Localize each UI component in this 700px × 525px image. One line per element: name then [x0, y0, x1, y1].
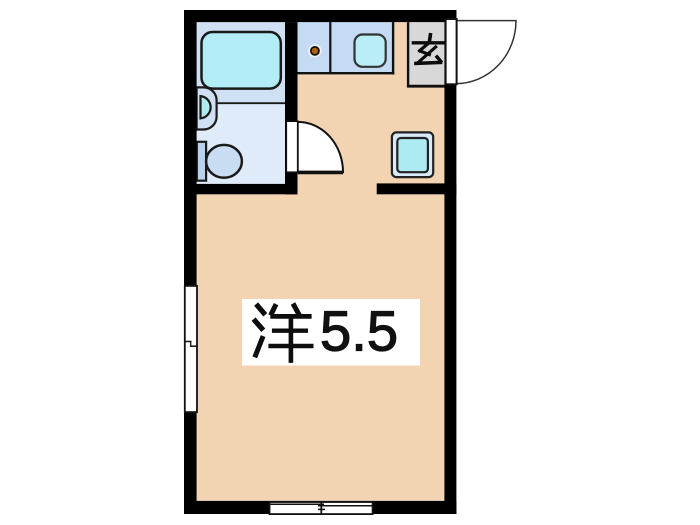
svg-text:5.5: 5.5: [320, 300, 398, 363]
